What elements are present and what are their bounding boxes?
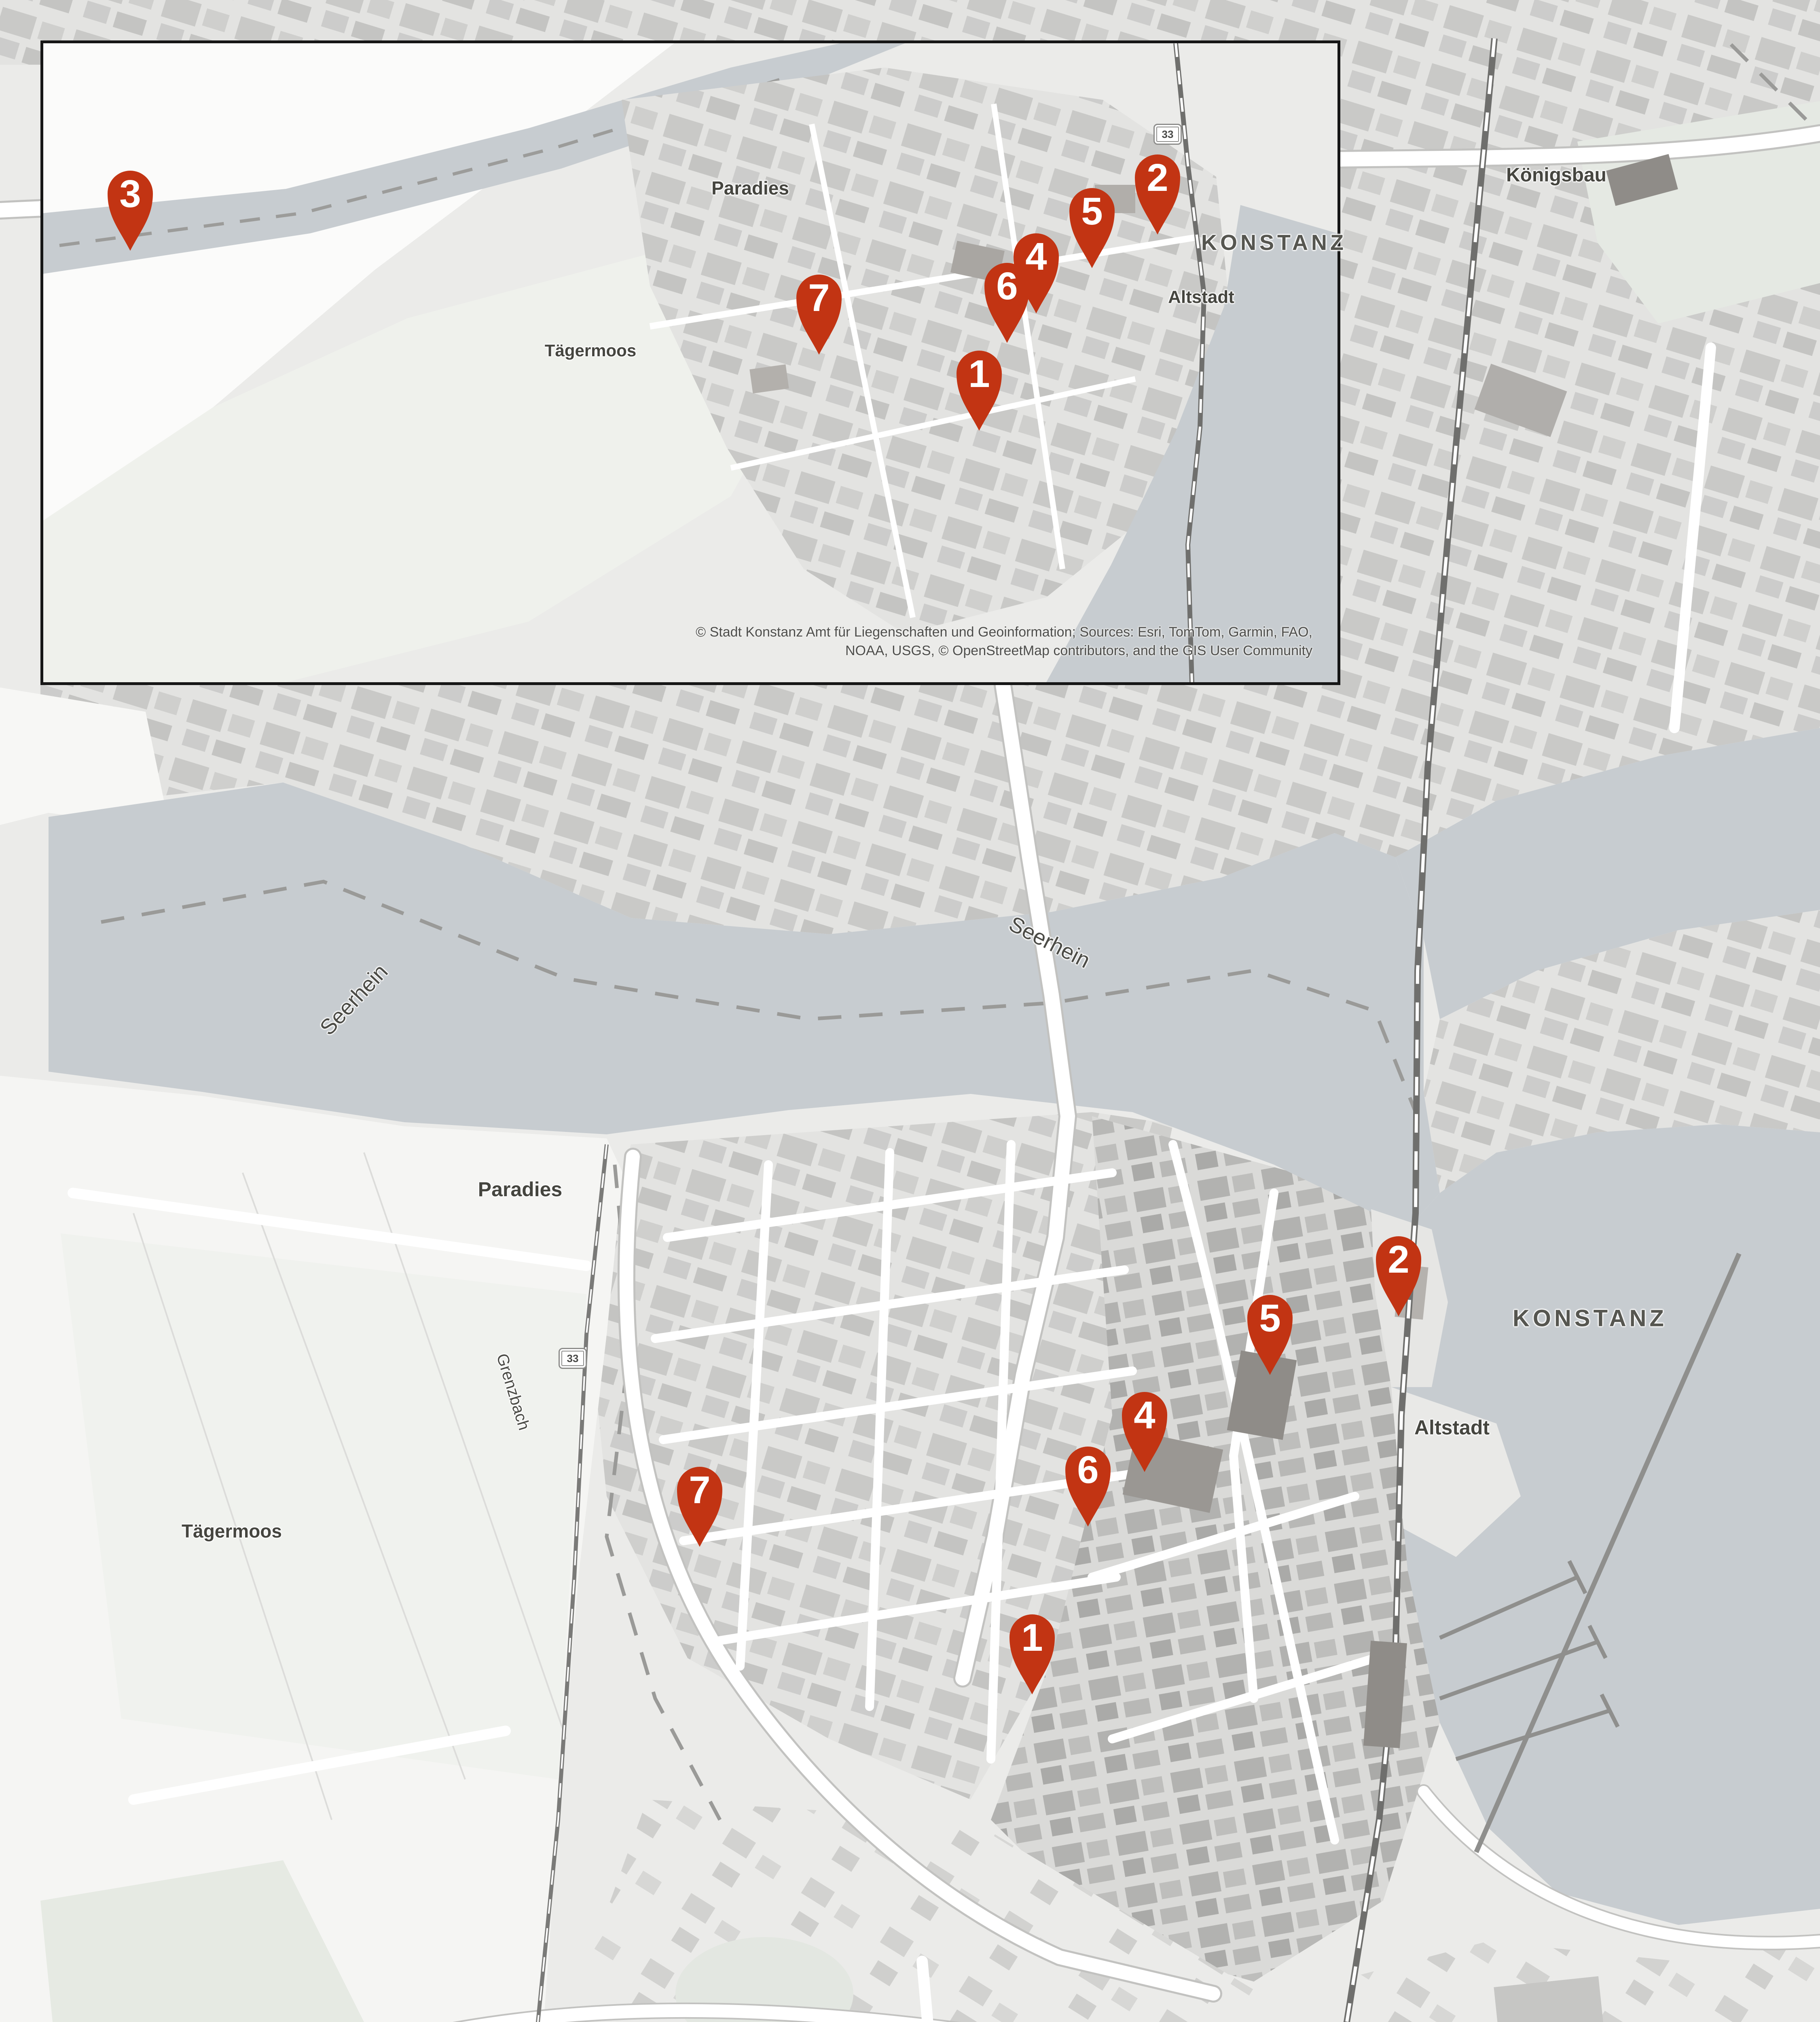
inset-attribution-line1: © Stadt Konstanz Amt für Liegenschaften … (696, 623, 1312, 641)
label-koenigsbau: Königsbau (1506, 164, 1606, 186)
pin-number: 4 (1134, 1394, 1155, 1437)
map-pin-6[interactable]: 6 (1063, 1443, 1113, 1529)
pin-number: 4 (1025, 235, 1047, 278)
inset-label-altstadt: Altstadt (1168, 287, 1234, 307)
pin-number: 5 (1259, 1297, 1280, 1340)
route-shield-33: 33 (559, 1348, 587, 1369)
pin-number: 7 (808, 276, 830, 319)
pin-number: 1 (968, 352, 990, 396)
inset-pin-2[interactable]: 2 (1132, 151, 1183, 237)
inset-pin-5[interactable]: 5 (1067, 185, 1117, 271)
pin-number: 3 (119, 172, 141, 216)
inset-pin-7[interactable]: 7 (794, 271, 844, 357)
inset-attribution: © Stadt Konstanz Amt für Liegenschaften … (696, 623, 1312, 660)
map-pin-7[interactable]: 7 (675, 1464, 725, 1549)
map-pin-1[interactable]: 1 (1007, 1611, 1057, 1697)
inset-label-paradies: Paradies (711, 177, 789, 199)
label-konstanz: KONSTANZ (1513, 1305, 1667, 1332)
pin-number: 1 (1021, 1616, 1043, 1659)
map-pin-4[interactable]: 4 (1120, 1389, 1170, 1474)
map-canvas: Paradies KONSTANZ Altstadt Tägermoos 33 … (0, 0, 1820, 2022)
map-pin-5[interactable]: 5 (1245, 1292, 1295, 1377)
pin-number: 6 (1077, 1448, 1098, 1491)
inset-pin-1[interactable]: 1 (954, 347, 1004, 433)
inset-label-taegermoos: Tägermoos (545, 341, 636, 360)
overview-inset-map (40, 40, 1340, 685)
inset-pin-3[interactable]: 3 (105, 167, 155, 253)
pin-number: 2 (1147, 156, 1168, 199)
pin-number: 2 (1388, 1238, 1409, 1281)
inset-pin-4[interactable]: 4 (1011, 230, 1061, 316)
pin-number: 7 (689, 1468, 710, 1512)
label-altstadt: Altstadt (1414, 1416, 1490, 1439)
inset-route-shield-33: 33 (1153, 124, 1182, 145)
inset-basemap (43, 43, 1337, 682)
inset-attribution-line2: NOAA, USGS, © OpenStreetMap contributors… (696, 641, 1312, 660)
pin-number: 5 (1081, 190, 1103, 233)
label-taegermoos: Tägermoos (182, 1520, 282, 1542)
map-pin-2[interactable]: 2 (1373, 1233, 1424, 1319)
label-paradies: Paradies (478, 1178, 562, 1201)
inset-label-konstanz: KONSTANZ (1201, 230, 1347, 255)
